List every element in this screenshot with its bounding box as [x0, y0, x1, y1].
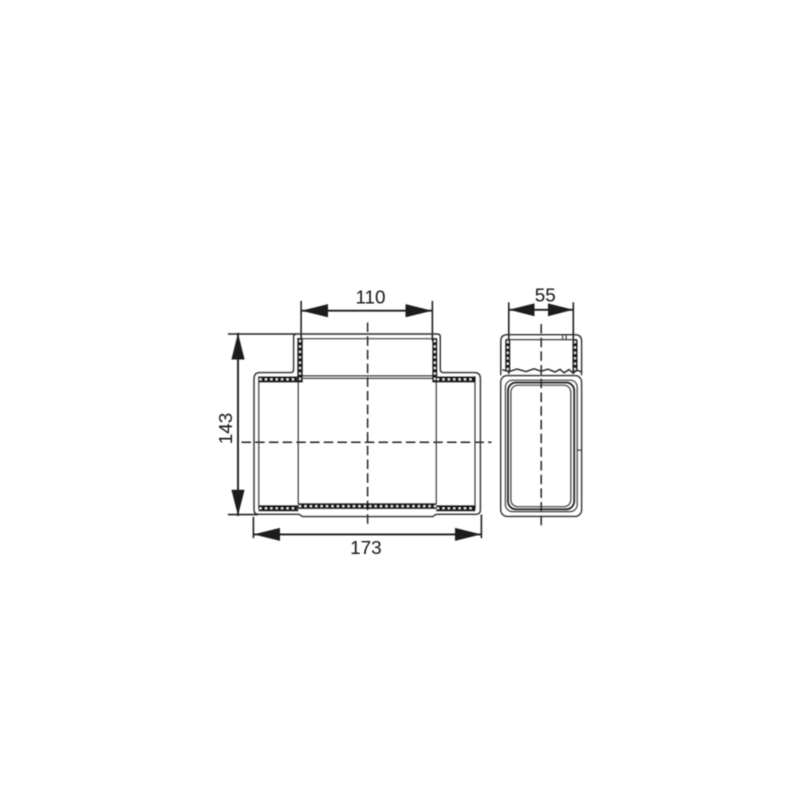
svg-text:110: 110 — [355, 288, 385, 309]
svg-text:55: 55 — [535, 285, 556, 306]
svg-text:143: 143 — [216, 413, 237, 445]
svg-text:173: 173 — [350, 538, 382, 559]
